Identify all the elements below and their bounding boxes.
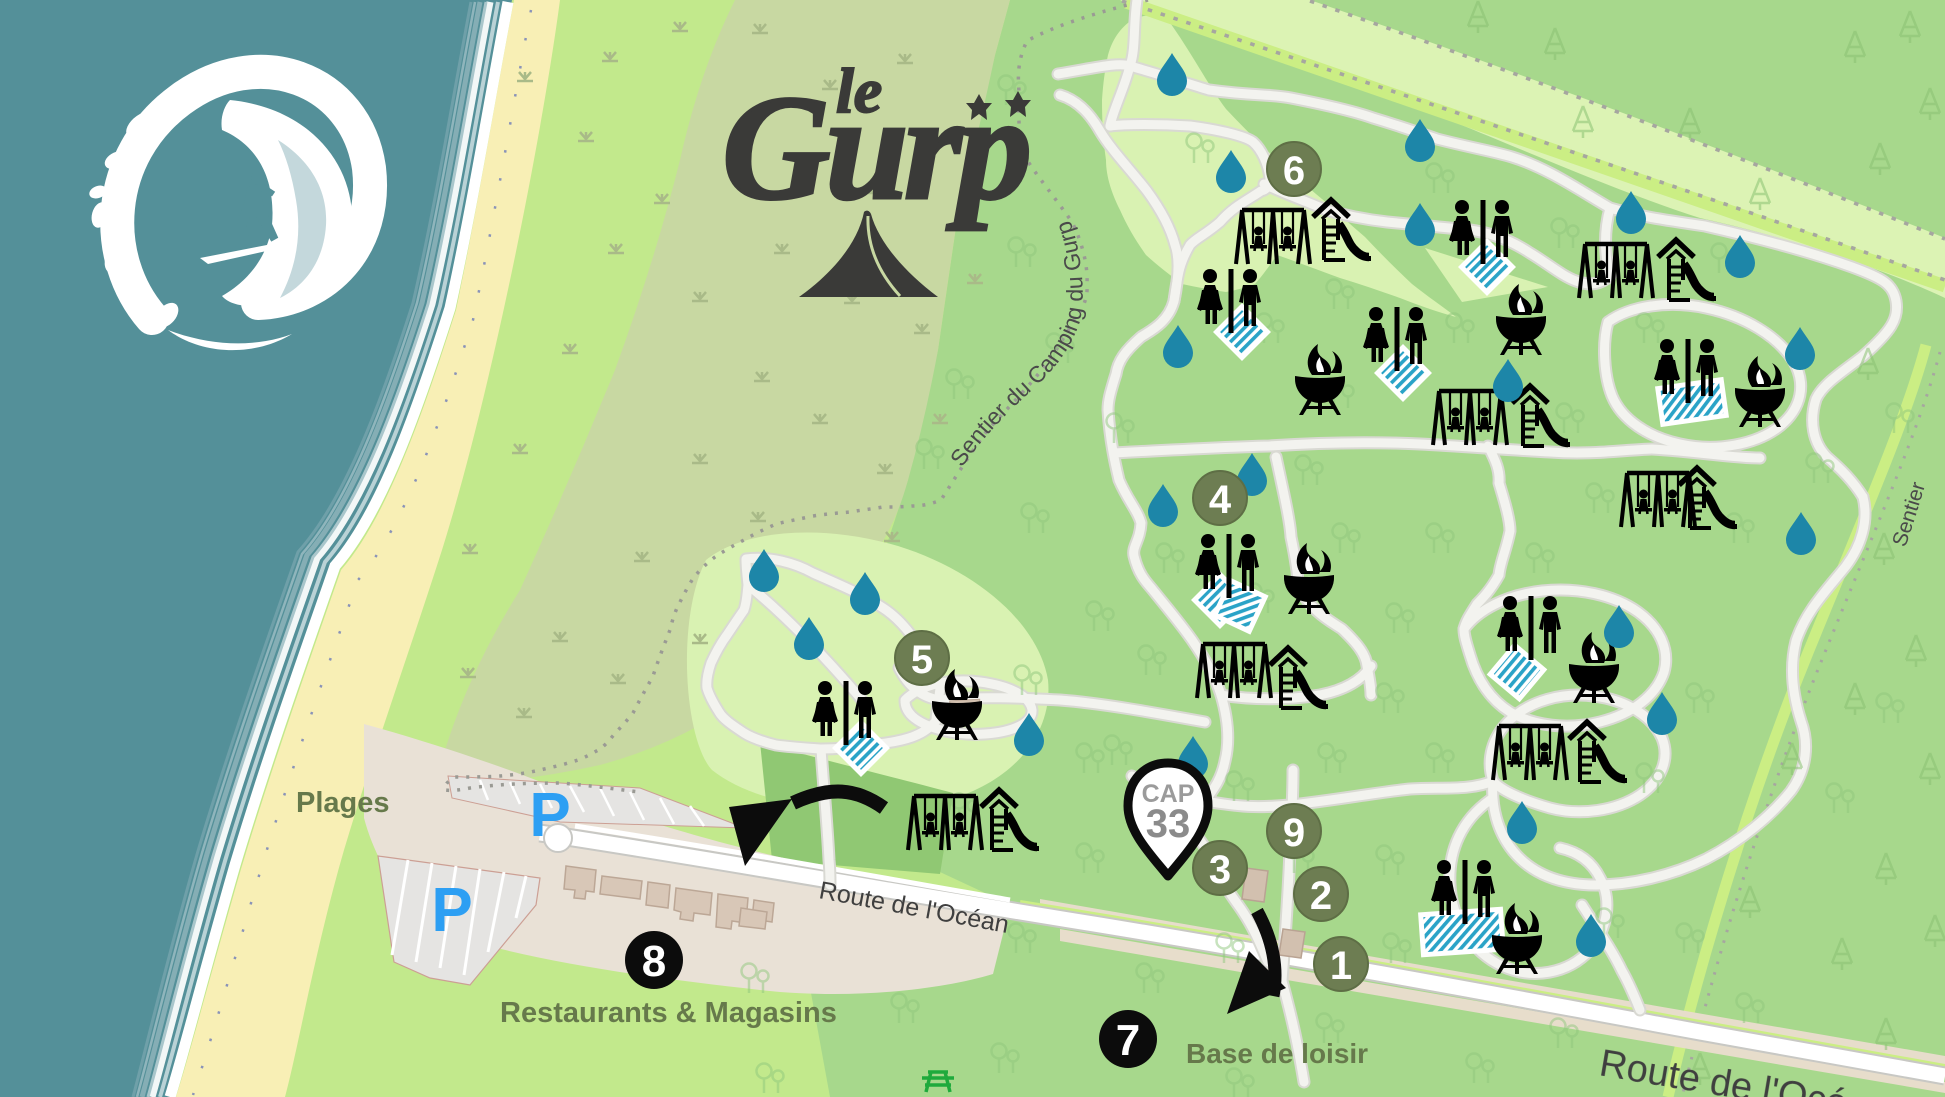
svg-text:P: P [529,781,570,850]
svg-text:P: P [431,876,472,945]
svg-text:9: 9 [1283,811,1305,855]
svg-text:Plages: Plages [296,787,390,819]
svg-text:6: 6 [1283,149,1305,193]
svg-text:Gurp: Gurp [722,65,1028,231]
svg-text:3: 3 [1209,848,1231,892]
svg-text:33: 33 [1146,802,1191,846]
svg-text:Base de loisir: Base de loisir [1186,1038,1368,1069]
svg-text:2: 2 [1310,874,1332,918]
svg-text:4: 4 [1209,478,1232,522]
svg-text:Restaurants & Magasins: Restaurants & Magasins [500,997,837,1029]
svg-text:5: 5 [911,638,933,682]
svg-text:8: 8 [642,937,666,986]
svg-text:7: 7 [1116,1016,1140,1065]
svg-text:1: 1 [1330,944,1352,988]
